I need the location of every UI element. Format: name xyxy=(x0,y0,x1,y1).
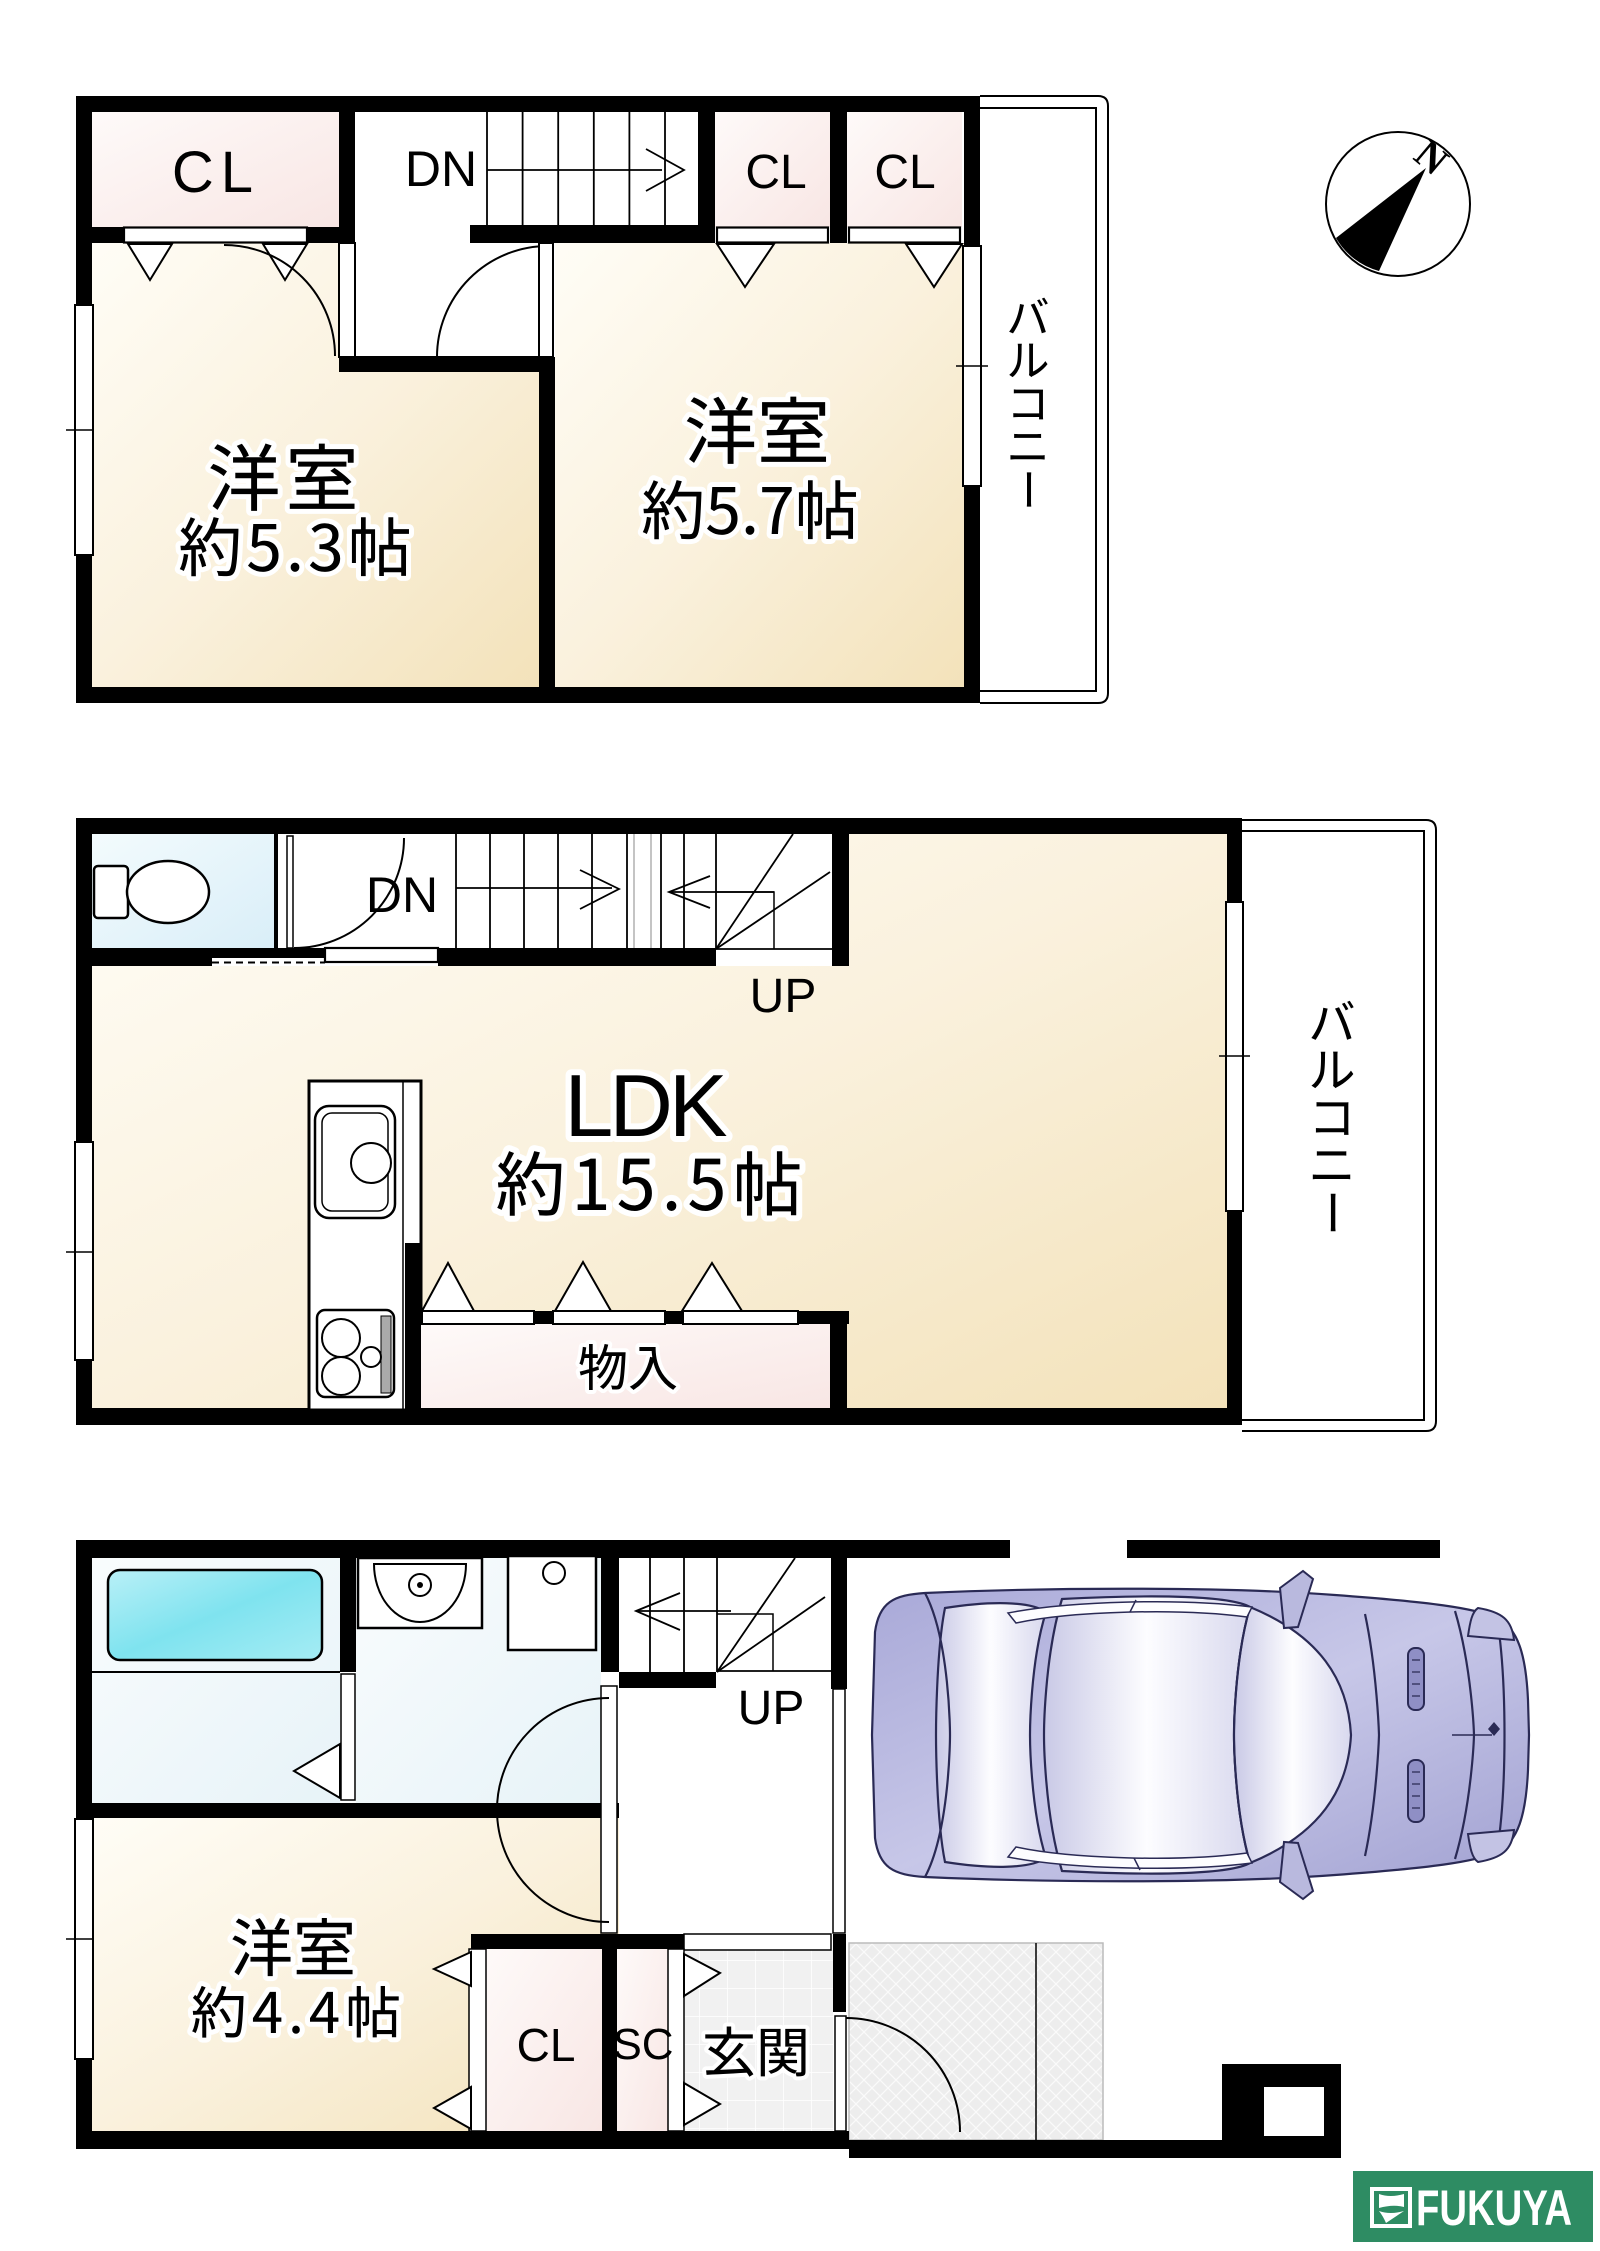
svg-text:SC: SC xyxy=(612,2020,673,2069)
svg-text:FUKUYA: FUKUYA xyxy=(1416,2180,1572,2236)
svg-text:CL: CL xyxy=(517,2019,576,2071)
svg-text:UP: UP xyxy=(738,1682,805,1735)
svg-text:DN: DN xyxy=(405,141,477,197)
svg-text:CL: CL xyxy=(172,140,260,205)
svg-text:CL: CL xyxy=(745,146,806,199)
svg-text:CL: CL xyxy=(874,146,935,199)
svg-text:UP: UP xyxy=(750,970,817,1023)
svg-text:LDK: LDK xyxy=(564,1056,726,1155)
svg-text:DN: DN xyxy=(366,867,438,923)
